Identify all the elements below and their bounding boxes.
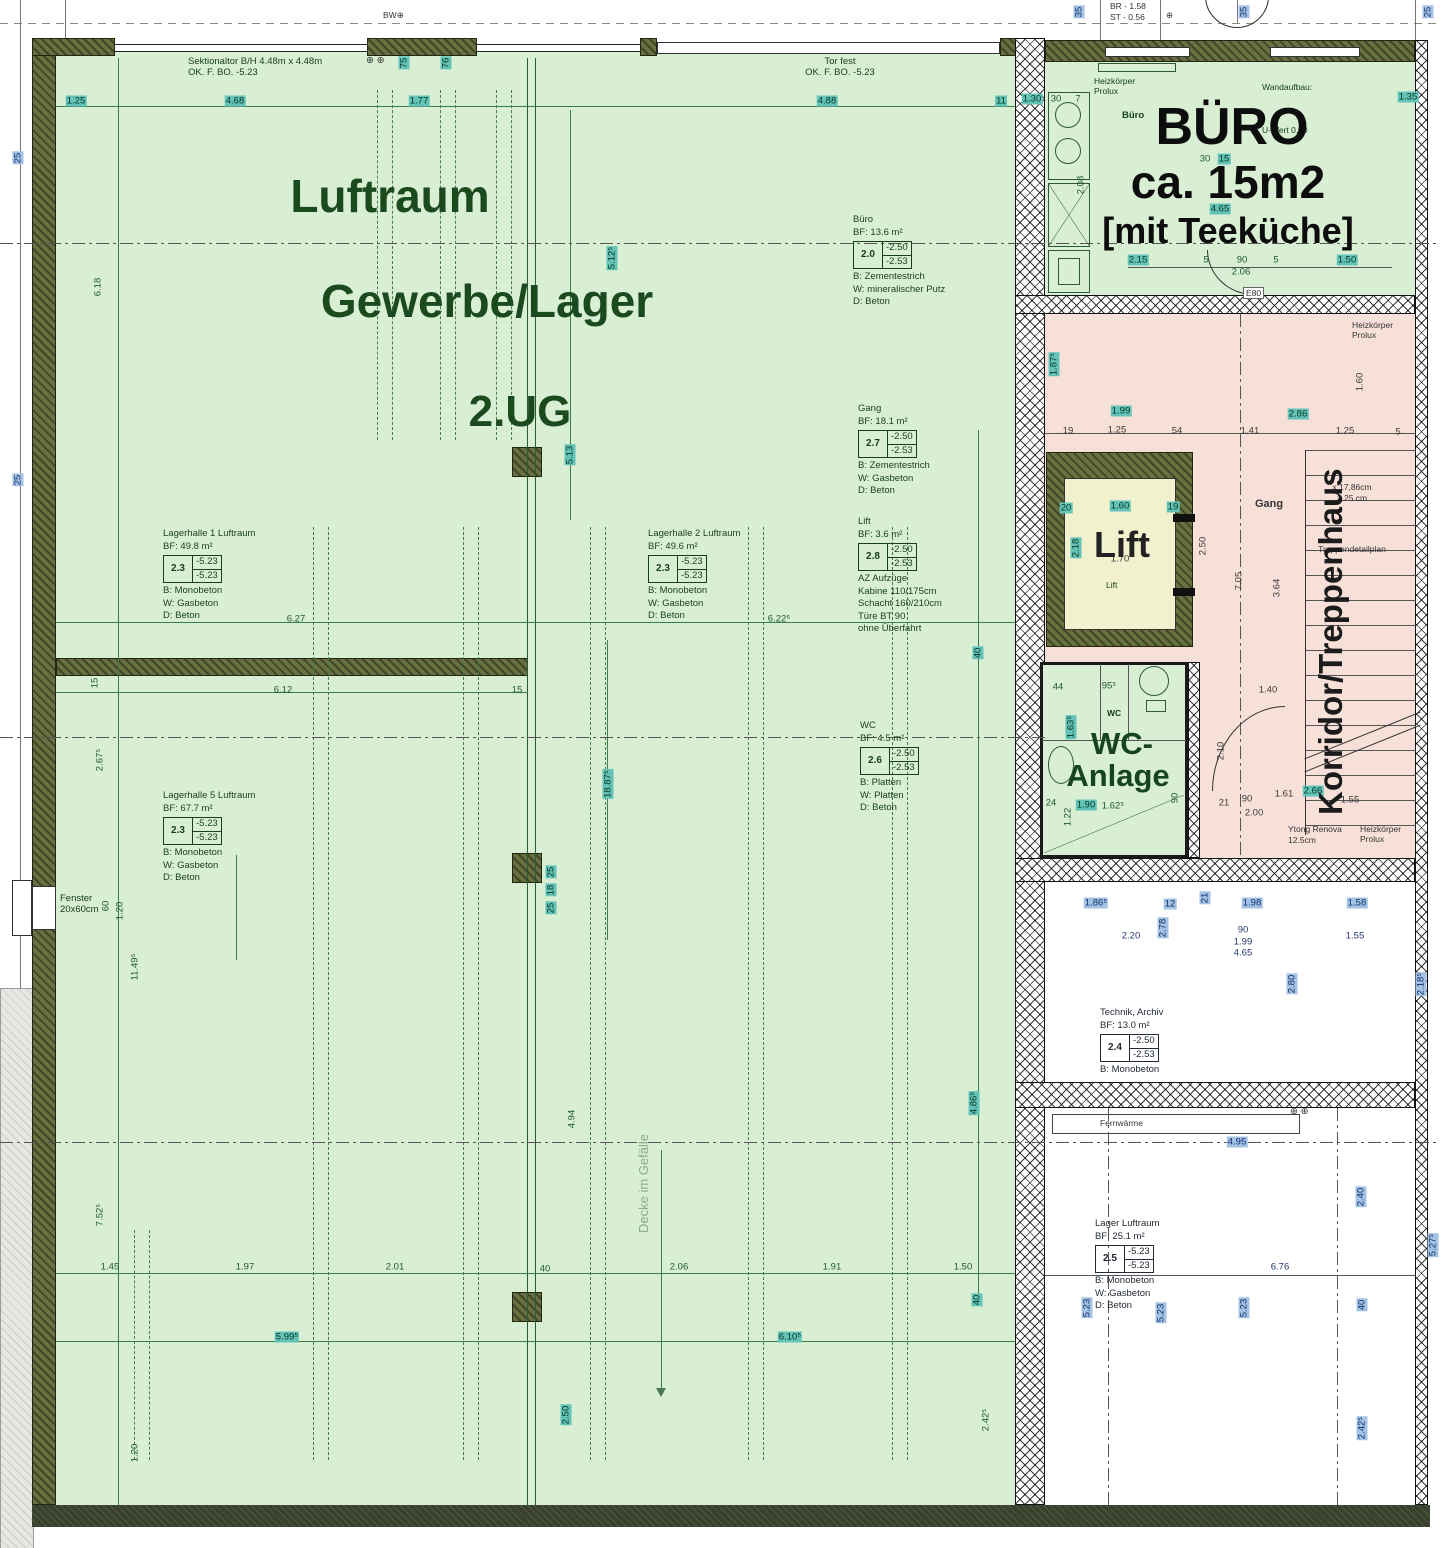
dimension-label: 24	[1045, 798, 1058, 809]
partition-wall	[56, 658, 528, 676]
lift-small-label: Lift	[1106, 580, 1117, 590]
dimension-label: 6.18	[93, 277, 104, 298]
room-info-lagerhalle-1: Lagerhalle 1 Luftraum BF: 49.8 m² 2.3-5.…	[163, 528, 255, 623]
label-lift: Lift	[1094, 526, 1150, 564]
dimension-label: 18	[546, 884, 557, 897]
arrow-down-icon	[656, 1388, 666, 1397]
dimension-label: 11.49⁵	[130, 952, 141, 981]
kitchen-unit	[1058, 258, 1080, 285]
dimension-label: 25	[13, 474, 24, 487]
room-spec: D: Beton	[648, 610, 740, 623]
dimension-label: 1.25	[66, 96, 87, 107]
washbasin-icon	[1139, 666, 1169, 696]
dimension-label: 1.50	[1337, 255, 1358, 266]
label-buero: BÜRO	[1155, 100, 1308, 155]
dimension-label: 4.68	[225, 96, 246, 107]
dimension-label: 7.05	[1234, 571, 1245, 592]
dimension-label: 11	[995, 96, 1007, 107]
dimension-label: 6.10⁵	[778, 1332, 802, 1343]
sheet-ref-st: ST - 0.56	[1110, 12, 1145, 22]
dimension-label: 44	[1052, 682, 1065, 693]
dimension-label: 5.23	[1239, 1298, 1250, 1319]
room-spec: W: Gasbeton	[1095, 1288, 1159, 1301]
room-level-box: 2.3-5.23-5.23	[163, 555, 222, 583]
dimension-label: 35	[1239, 6, 1250, 19]
wall-bottom	[32, 1505, 1430, 1527]
ytong-note-2: 12.5cm	[1288, 835, 1316, 845]
room-spec: W: Gasbeton	[648, 598, 740, 611]
room-spec: B: Monobeton	[1095, 1275, 1159, 1288]
room-name: Lagerhalle 5 Luftraum	[163, 790, 255, 803]
dimension-label: 5.99⁵	[275, 1332, 299, 1343]
sheet-ref-br: BR - 1.58	[1110, 1, 1146, 11]
dimension-label: 1.50	[953, 1262, 974, 1273]
room-spec: B: Zementestrich	[858, 460, 930, 473]
room-name: Büro	[853, 214, 945, 227]
dimension-label: 5.27⁵	[1428, 1233, 1439, 1257]
room-spec: Türe BT 90	[858, 611, 942, 624]
dimension-label: 75	[399, 57, 410, 70]
room-spec: Schacht 160/210cm	[858, 598, 942, 611]
wandaufbau-note-1: Wandaufbau:	[1262, 82, 1312, 92]
axis-line	[1337, 1108, 1338, 1505]
dimension-label: 25	[13, 152, 24, 165]
dimension-label: 1.25	[1107, 425, 1128, 436]
room-area: BF: 13.6 m²	[853, 227, 945, 240]
heizkoerper-note: Heizkörper	[1360, 824, 1401, 834]
fenster-note-2: 20x60cm	[60, 904, 99, 915]
room-area: BF: 4.5 m²	[860, 733, 919, 746]
room-level-box: 2.5-5.23-5.23	[1095, 1245, 1154, 1273]
grid-line	[1415, 0, 1416, 40]
dimension-label: 2.08	[1076, 175, 1087, 196]
room-spec: W: Gasbeton	[858, 473, 930, 486]
rack	[748, 527, 764, 1460]
dimension-label: 2.00	[1244, 808, 1265, 819]
dimension-label: 1.40	[1258, 685, 1279, 696]
rack	[134, 1230, 150, 1460]
room-spec: D: Beton	[163, 872, 255, 885]
wall-top-segment	[32, 38, 115, 56]
dimension-label: 2.78	[1158, 918, 1169, 939]
dimension-label: 2.06	[669, 1262, 690, 1273]
dimension-label: 90	[1237, 925, 1250, 936]
fernwaerme-label: Fernwärme	[1100, 1118, 1143, 1128]
fenster-note-1: Fenster	[60, 893, 92, 904]
dimension-label: 76	[441, 57, 452, 70]
heizkoerper-note: Prolux	[1360, 834, 1384, 844]
dimension-label: 6.27	[286, 614, 307, 625]
dim-line	[978, 430, 979, 1300]
buero-window	[1270, 47, 1360, 57]
dimension-label: 21	[1218, 798, 1231, 809]
room-info-lift: Lift BF: 3.6 m² 2.8-2.50-2.53 AZ Aufzüge…	[858, 516, 942, 636]
rack	[892, 527, 908, 1460]
sektionaltor-note-1: Sektionaltor B/H 4.48m x 4.48m	[188, 56, 322, 67]
wc-small-label: WC	[1107, 708, 1121, 718]
room-name: Gang	[858, 403, 930, 416]
dimension-label: 2.18	[1071, 538, 1082, 559]
dim-line	[56, 1341, 1015, 1342]
dimension-label: 1.61	[1274, 789, 1295, 800]
dimension-label: 1.30	[1022, 94, 1043, 105]
wall-below-buero	[1015, 295, 1415, 314]
room-spec: B: Monobeton	[1100, 1064, 1163, 1077]
adjacent-area	[0, 988, 34, 1548]
room-info-lagerhalle-2: Lagerhalle 2 Luftraum BF: 49.6 m² 2.3-5.…	[648, 528, 740, 623]
dimension-label: 40	[972, 1294, 983, 1307]
dimension-label: 90	[1170, 792, 1181, 805]
dimension-label: 1.20	[130, 1443, 141, 1464]
dimension-label: 2.42⁵	[1357, 1416, 1368, 1440]
room-name: WC	[860, 720, 919, 733]
room-spec: Kabine 110/175cm	[858, 586, 942, 599]
dimension-label: 1.60	[1110, 501, 1131, 512]
fernwaerme-duct	[1052, 1114, 1300, 1134]
dimension-label: 40	[1357, 1299, 1368, 1312]
dimension-label: 2.40	[1356, 1187, 1367, 1208]
room-spec: B: Monobeton	[163, 847, 255, 860]
dimension-label: 1.97	[235, 1262, 256, 1273]
room-level-box: 2.8-2.50-2.53	[858, 543, 917, 571]
room-spec: D: Beton	[1095, 1300, 1159, 1313]
room-level-box: 2.0-2.50-2.53	[853, 241, 912, 269]
label-teekueche: [mit Teeküche]	[1102, 212, 1353, 250]
dimension-label: 2.10	[1216, 741, 1227, 762]
label-wc-anlage-1: WC-	[1091, 728, 1153, 761]
sink-icon	[1055, 138, 1081, 164]
room-area: BF: 25.1 m²	[1095, 1231, 1159, 1244]
buero-small-label: Büro	[1122, 110, 1144, 121]
wall-below-corridor	[1015, 858, 1415, 882]
room-spec: W: mineralischer Putz	[853, 284, 945, 297]
dimension-label: 3.64	[1272, 578, 1283, 599]
plus-marker: ⊕	[1166, 10, 1173, 20]
dimension-label: 1.62⁵	[1101, 801, 1125, 812]
dimension-label: 1.91	[822, 1262, 843, 1273]
dimension-label: 2.50	[1198, 536, 1209, 557]
dimension-label: 2.80	[1287, 974, 1298, 995]
label-gewerbe-lager: Gewerbe/Lager	[321, 277, 653, 325]
dimension-label: 5	[1272, 255, 1279, 266]
wall-below-technik	[1015, 1082, 1415, 1108]
room-name: Technik, Archiv	[1100, 1007, 1163, 1020]
dimension-label: 1.20	[115, 901, 126, 922]
dimension-label: 40	[539, 1264, 552, 1275]
dimension-label: 2.50	[561, 1405, 572, 1426]
room-area: BF: 49.8 m²	[163, 541, 255, 554]
dimension-label: 19	[1167, 502, 1180, 513]
label-2ug: 2.UG	[469, 389, 572, 435]
dimension-label: 4.94	[567, 1109, 578, 1130]
dimension-label: 2.42⁵	[981, 1408, 992, 1432]
lift-door	[1173, 514, 1195, 522]
dimension-label: 2.01	[385, 1262, 406, 1273]
dimension-label: 1.63⁵	[1066, 715, 1077, 739]
dimension-label: 25	[546, 866, 557, 879]
dimension-label: 1.55	[1345, 931, 1366, 942]
dimension-label: 90	[1236, 255, 1249, 266]
dimension-label: 2.86	[1288, 409, 1309, 420]
dimension-label: 60	[101, 900, 112, 913]
room-area: BF: 13.0 m²	[1100, 1020, 1163, 1033]
dim-line	[56, 1273, 1015, 1274]
dimension-label: 1.22	[1063, 807, 1074, 828]
dimension-label: 19	[1062, 426, 1075, 437]
dim-line	[118, 58, 119, 1505]
room-info-wc: WC BF: 4.5 m² 2.6-2.50-2.53 B: Platten W…	[860, 720, 919, 815]
plus-pair-marker: ⊕ ⊕	[366, 55, 385, 66]
dimension-label: 5	[1202, 255, 1209, 266]
dimension-label: 2.06	[1231, 267, 1252, 278]
window-sill	[12, 880, 32, 936]
dimension-label: 1.45	[100, 1262, 121, 1273]
tor-fest-door	[657, 42, 1000, 54]
room-spec: AZ Aufzüge	[858, 573, 942, 586]
dimension-label: 5.23	[1156, 1303, 1167, 1324]
room-level-box: 2.4-2.50-2.53	[1100, 1034, 1159, 1062]
dimension-label: 1.35	[1398, 92, 1419, 103]
dimension-label: 1.99	[1111, 406, 1132, 417]
sektionaltor-note-2: OK. F. BO. -5.23	[188, 67, 258, 78]
door-opening	[477, 44, 640, 52]
dimension-label: 40	[973, 647, 984, 660]
e80-tag: E80	[1244, 288, 1263, 298]
sink-icon	[1055, 102, 1081, 128]
wall-left	[32, 38, 56, 1505]
label-decke-im-gefaelle: Decke im Gefälle	[636, 1108, 651, 1233]
floor-plan: BR - 1.58 ST - 0.56 BW⊕ ⊕	[0, 0, 1440, 1548]
room-spec: D: Beton	[858, 485, 930, 498]
dimension-label: 1.99	[1233, 937, 1254, 948]
dimension-label: 2.15	[1128, 255, 1149, 266]
room-level-box: 2.3-5.23-5.23	[163, 817, 222, 845]
room-spec: D: Beton	[860, 802, 919, 815]
room-spec: D: Beton	[853, 296, 945, 309]
dimension-label: 1.41	[1240, 426, 1261, 437]
dimension-label: 90	[1241, 794, 1254, 805]
dimension-label: 1.60	[1355, 372, 1366, 393]
room-spec: W: Gasbeton	[163, 860, 255, 873]
dimension-label: 4.86⁵	[969, 1091, 980, 1115]
label-luftraum: Luftraum	[290, 172, 489, 220]
room-spec: B: Monobeton	[648, 585, 740, 598]
dimension-label: 5.23	[1082, 1298, 1093, 1319]
rack	[463, 527, 479, 1460]
dimension-label: 95⁵	[1101, 681, 1118, 692]
room-info-gang: Gang BF: 18.1 m² 2.7-2.50-2.53 B: Zement…	[858, 403, 930, 498]
bw-marker: BW⊕	[383, 10, 404, 20]
room-info-technik: Technik, Archiv BF: 13.0 m² 2.4-2.50-2.5…	[1100, 1007, 1163, 1077]
tor-fest-note-1: Tor fest	[824, 56, 855, 67]
dimension-label: 21	[1200, 892, 1211, 905]
room-spec: B: Zementestrich	[853, 271, 945, 284]
dimension-label: 35	[1074, 6, 1085, 19]
rack	[377, 90, 393, 440]
gang-label: Gang	[1255, 499, 1283, 510]
dimension-label: 7.52⁵	[95, 1203, 106, 1227]
dimension-label: 6.76	[1270, 1262, 1291, 1273]
dimension-label: 5.13	[565, 445, 576, 466]
dimension-label: 6.22⁵	[767, 614, 791, 625]
room-spec: D: Beton	[163, 610, 255, 623]
label-buero-area: ca. 15m2	[1131, 158, 1325, 206]
room-area: BF: 67.7 m²	[163, 803, 255, 816]
ytong-note-1: Ytong Renova	[1288, 824, 1342, 834]
dimension-label: 6.12	[273, 685, 294, 696]
dimension-label: 25	[1423, 6, 1434, 19]
room-area: BF: 49.6 m²	[648, 541, 740, 554]
heizkoerper-note: Prolux	[1352, 330, 1376, 340]
dimension-label: 4.65	[1233, 948, 1254, 959]
label-korridor-treppenhaus: Korridor/Treppenhaus	[1312, 395, 1350, 815]
room-info-lager: Lager Luftraum BF: 25.1 m² 2.5-5.23-5.23…	[1095, 1218, 1159, 1313]
dimension-label: 2.20	[1121, 931, 1142, 942]
sektionaltor-door	[115, 44, 367, 52]
dimension-label: 1.90	[1076, 800, 1097, 811]
room-name: Lagerhalle 2 Luftraum	[648, 528, 740, 541]
plus-pair-marker: ⊕ ⊕	[1290, 1106, 1309, 1117]
dimension-label: 1.98	[1242, 898, 1263, 909]
dimension-label: 25	[546, 902, 557, 915]
buero-window	[1105, 47, 1190, 57]
tor-fest-note-2: OK. F. BO. -5.23	[805, 67, 875, 78]
dimension-label: 1.86⁵	[1084, 898, 1108, 909]
dimension-label: 54	[1171, 426, 1184, 437]
room-level-box: 2.7-2.50-2.53	[858, 430, 917, 458]
room-area: BF: 18.1 m²	[858, 416, 930, 429]
dimension-label: 1.87⁵	[1049, 352, 1060, 376]
dimension-label: 5	[1394, 427, 1401, 438]
room-spec: B: Platten	[860, 777, 919, 790]
drain-line	[661, 1150, 662, 1388]
room-info-lagerhalle-5: Lagerhalle 5 Luftraum BF: 67.7 m² 2.3-5.…	[163, 790, 255, 885]
room-name: Lager Luftraum	[1095, 1218, 1159, 1231]
rack	[313, 527, 329, 1460]
dimension-label: 5.12⁵	[607, 246, 618, 270]
room-name: Lagerhalle 1 Luftraum	[163, 528, 255, 541]
fenster-window	[32, 886, 56, 930]
dim-line	[56, 106, 1015, 107]
room-spec: B: Monobeton	[163, 585, 255, 598]
heizkoerper-note: Prolux	[1094, 86, 1118, 96]
dimension-label: 18.87⁵	[603, 769, 614, 799]
wall-top-segment	[640, 38, 657, 56]
radiator	[1098, 63, 1176, 72]
dimension-label: 2.67⁵	[95, 748, 106, 772]
dimension-label: 2.18⁵	[1416, 972, 1427, 996]
lift-door	[1173, 588, 1195, 596]
dimension-label: 30	[1050, 94, 1063, 105]
dimension-label: 1.77	[409, 96, 430, 107]
dimension-label: 12	[1164, 899, 1177, 910]
wall-top-segment	[367, 38, 477, 56]
dimension-label: 15	[511, 685, 524, 696]
heizkoerper-note: Heizkörper	[1094, 76, 1135, 86]
wc-side-wall	[1188, 662, 1200, 858]
dimension-label: 4.95	[1227, 1137, 1248, 1148]
room-spec: W: Gasbeton	[163, 598, 255, 611]
rack	[590, 527, 606, 1460]
room-spec: ohne Überfahrt	[858, 623, 942, 636]
rack	[440, 90, 456, 440]
axis-line	[0, 1142, 1440, 1143]
heizkoerper-note: Heizkörper	[1352, 320, 1393, 330]
dimension-label: 4.88	[817, 96, 838, 107]
dim-line	[1045, 433, 1415, 434]
dim-line	[1128, 267, 1392, 268]
dimension-label: 1.58	[1347, 898, 1368, 909]
room-name: Lift	[858, 516, 942, 529]
room-level-box: 2.3-5.23-5.23	[648, 555, 707, 583]
dimension-label: 15	[90, 677, 101, 690]
dimension-label: 20	[1060, 503, 1073, 514]
dimension-label: 7	[1074, 94, 1081, 105]
grid-line	[65, 0, 66, 38]
room-area: BF: 3.6 m²	[858, 529, 942, 542]
room-info-buero: Büro BF: 13.6 m² 2.0-2.50-2.53 B: Zement…	[853, 214, 945, 309]
room-level-box: 2.6-2.50-2.53	[860, 747, 919, 775]
washbasin-icon	[1146, 700, 1166, 712]
label-wc-anlage-2: Anlage	[1066, 760, 1169, 793]
room-spec: W: Platten	[860, 790, 919, 803]
wall-right	[1415, 40, 1428, 1505]
